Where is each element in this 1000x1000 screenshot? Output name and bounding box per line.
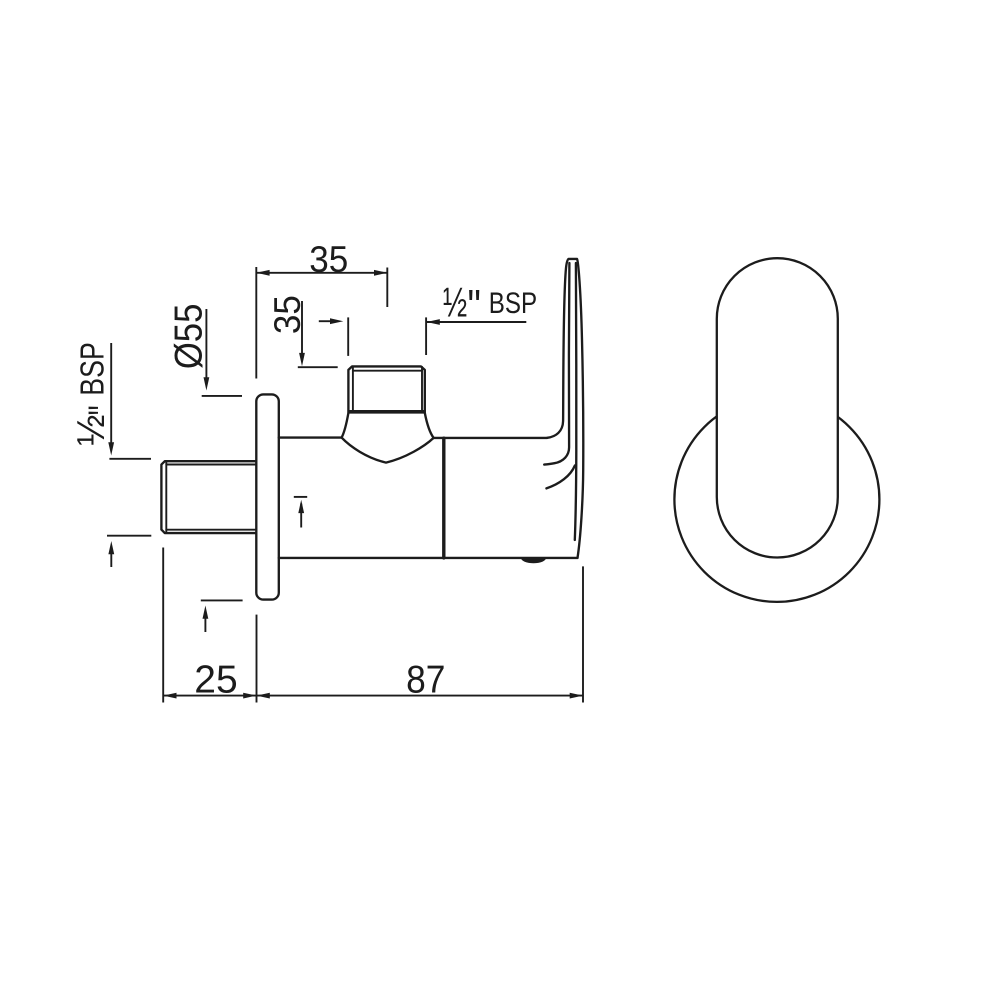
svg-text:Ø55: Ø55 — [167, 304, 210, 370]
svg-text:87: 87 — [406, 659, 445, 702]
svg-text:½: ½ — [443, 279, 467, 326]
svg-text:BSP: BSP — [73, 342, 110, 396]
svg-text:25: 25 — [194, 659, 237, 702]
svg-text:": " — [79, 405, 128, 415]
svg-text:½: ½ — [70, 415, 113, 446]
svg-text:": " — [468, 280, 481, 332]
svg-text:35: 35 — [309, 238, 348, 280]
svg-text:BSP: BSP — [489, 287, 537, 320]
svg-text:35: 35 — [266, 295, 308, 334]
